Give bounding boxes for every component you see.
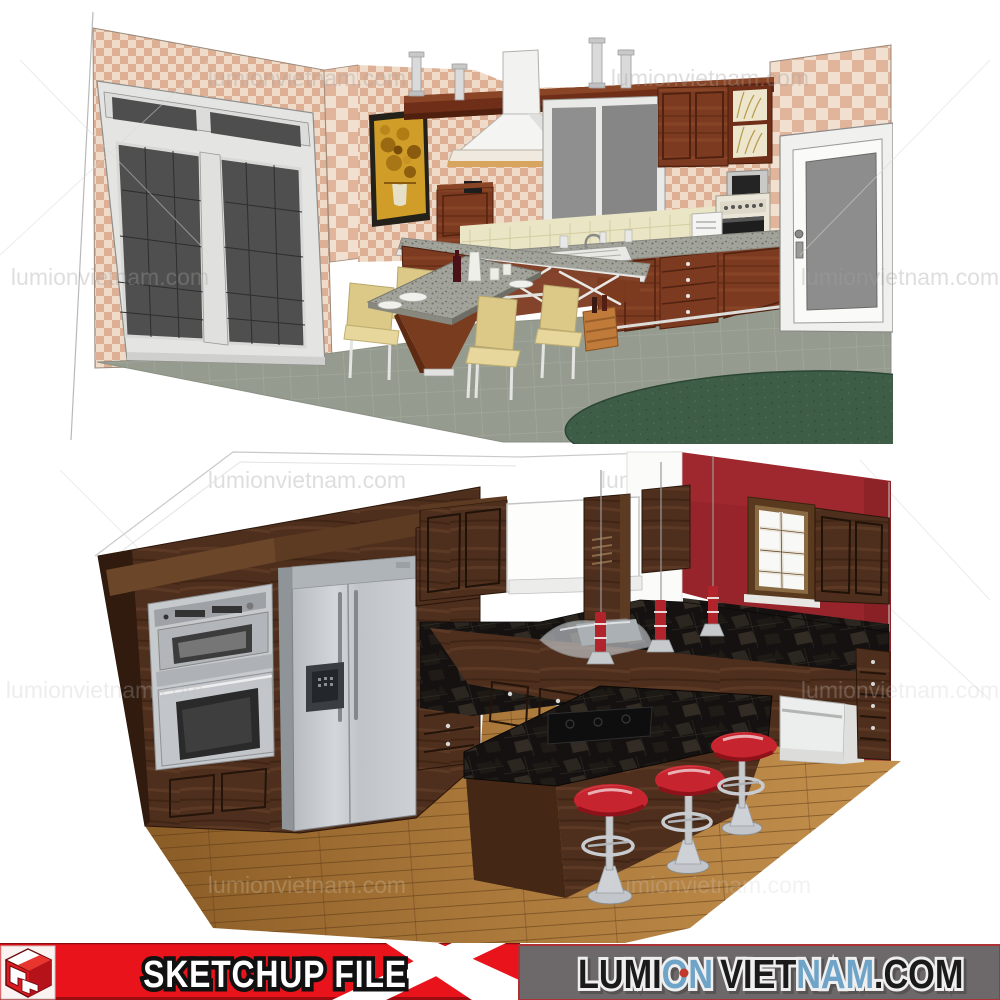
- svg-text:lumionvietnam.com: lumionvietnam.com: [208, 65, 406, 91]
- svg-text:lumionvietnam.com: lumionvietnam.com: [208, 872, 406, 898]
- svg-text:.COM: .COM: [874, 952, 963, 998]
- svg-text:lumionvietnam.com: lumionvietnam.com: [801, 677, 999, 703]
- svg-text:lumionvietnam.com: lumionvietnam.com: [613, 872, 811, 898]
- svg-text:LUMI: LUMI: [578, 952, 662, 998]
- svg-text:lumionvietnam.com: lumionvietnam.com: [611, 65, 809, 91]
- svg-text:lumionvietnam.com: lumionvietnam.com: [11, 264, 209, 290]
- svg-text:lumionvietnam.com: lumionvietnam.com: [6, 677, 204, 703]
- svg-text:SKETCHUP FILE: SKETCHUP FILE: [143, 953, 407, 995]
- svg-text:lumionvietnam.com: lumionvietnam.com: [801, 264, 999, 290]
- svg-text:lumionvietnam.com: lumionvietnam.com: [208, 467, 406, 493]
- svg-text:NAM: NAM: [796, 952, 874, 998]
- svg-text:VIET: VIET: [720, 952, 796, 998]
